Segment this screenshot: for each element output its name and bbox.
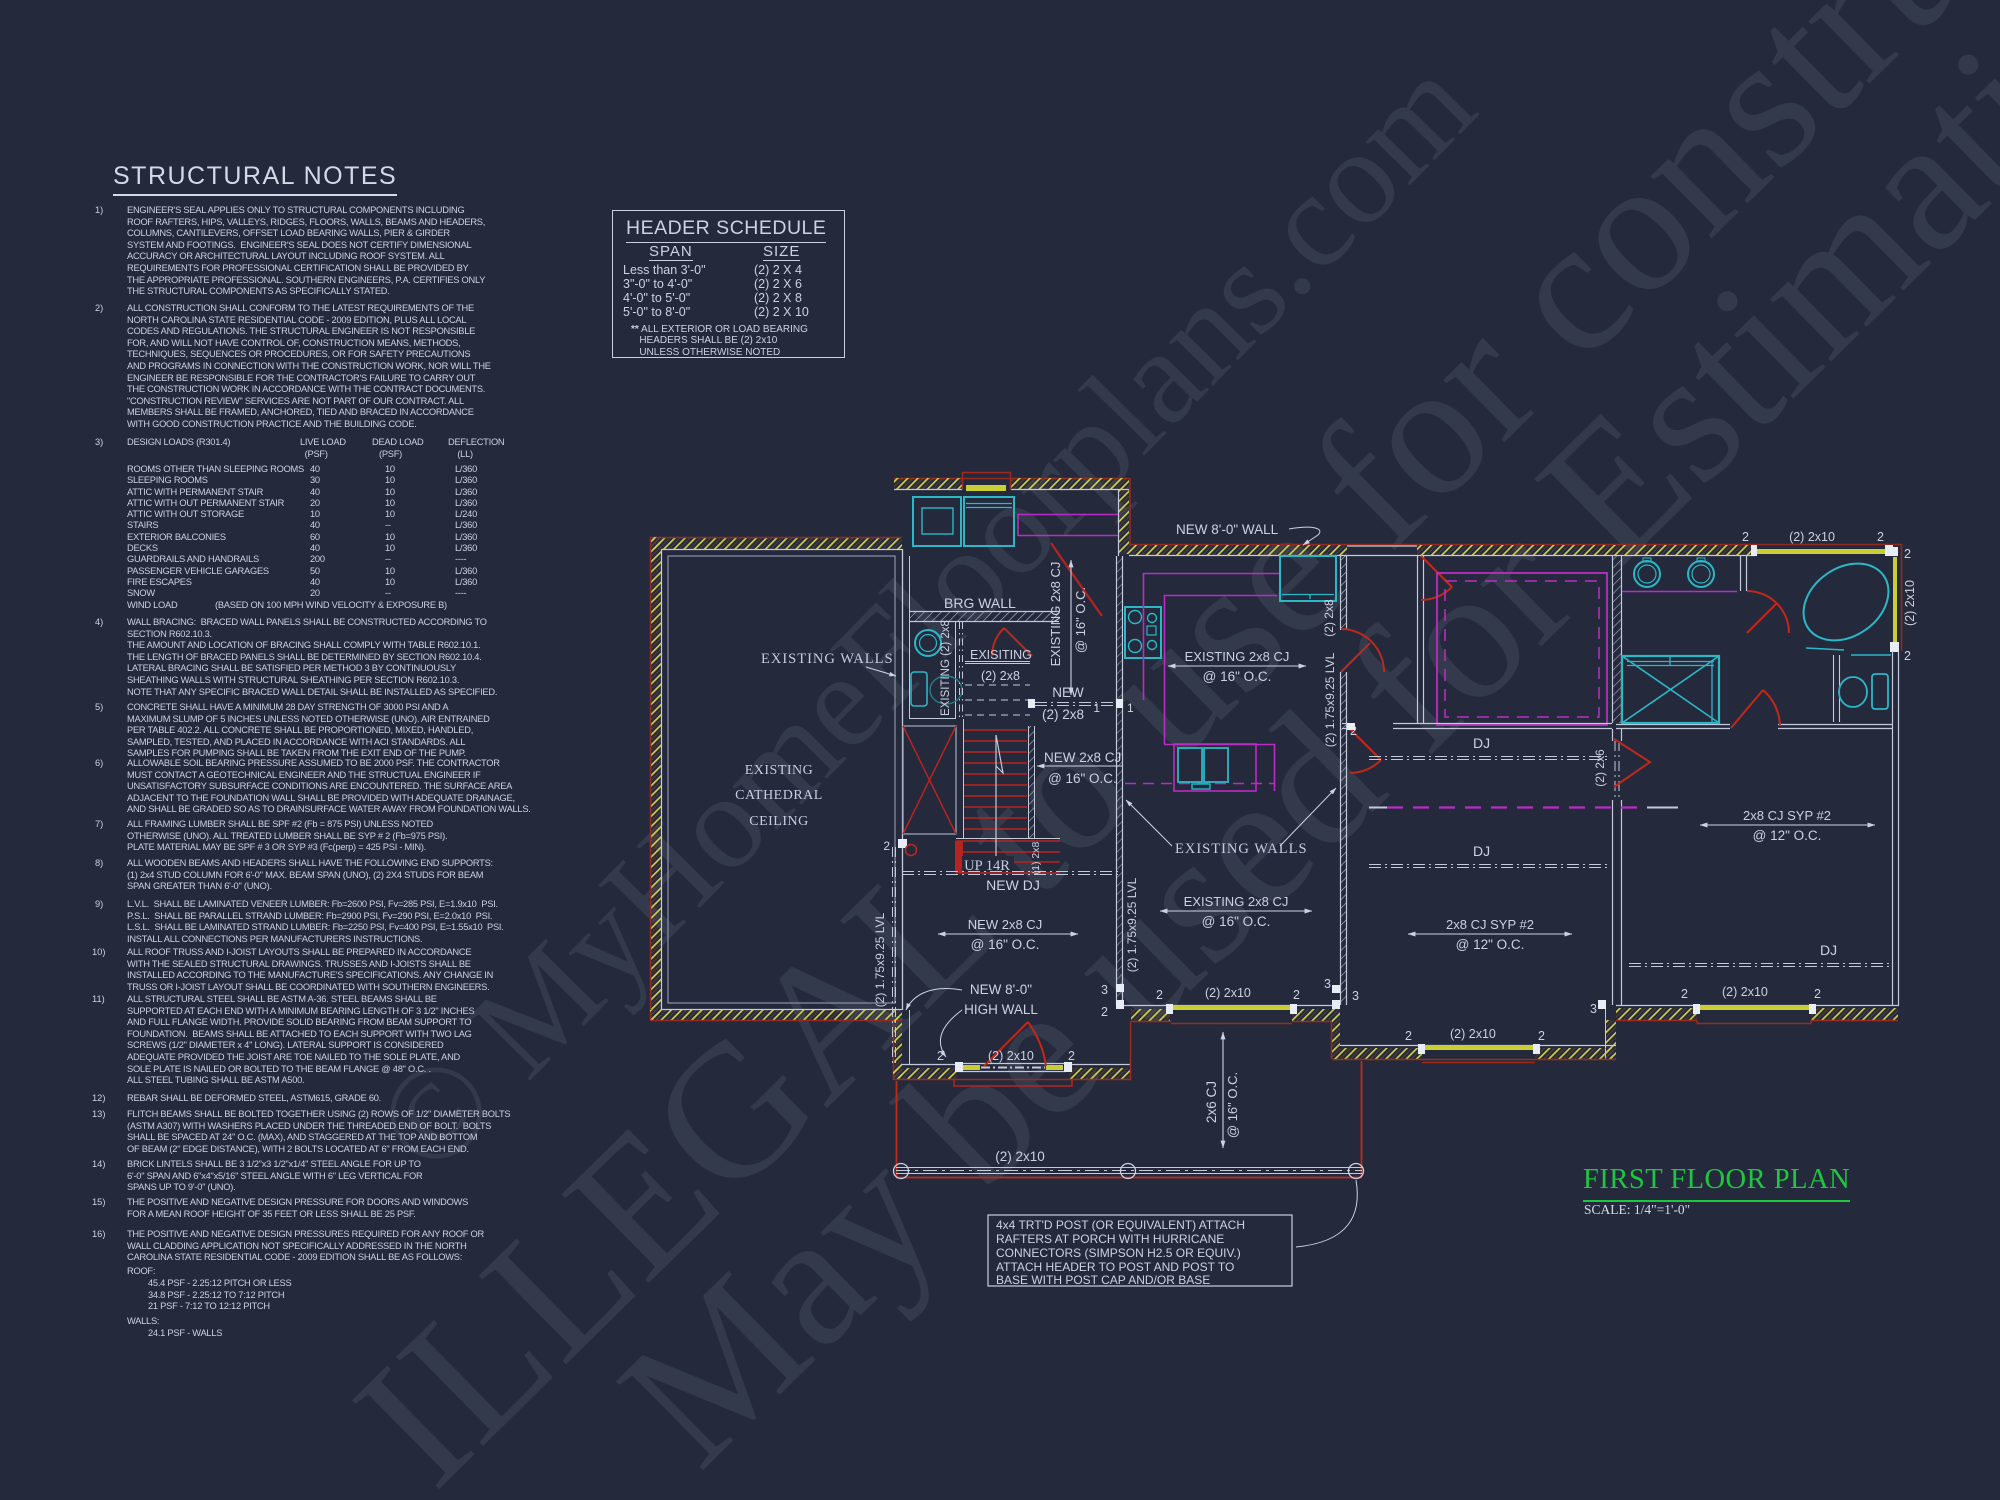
svg-text:NEW 2x8 CJ: NEW 2x8 CJ — [968, 917, 1042, 932]
svg-text:NEW 8'-0": NEW 8'-0" — [970, 982, 1032, 997]
svg-text:@ 16" O.C.: @ 16" O.C. — [1202, 914, 1271, 929]
svg-text:BRG WALL: BRG WALL — [944, 595, 1016, 611]
svg-text:(2) 2x8: (2) 2x8 — [1042, 707, 1084, 722]
svg-text:DJ: DJ — [1820, 942, 1837, 958]
svg-text:EXISTING WALLS: EXISTING WALLS — [761, 651, 894, 667]
svg-text:(2) 2x10: (2) 2x10 — [1722, 985, 1768, 999]
svg-text:HIGH WALL: HIGH WALL — [964, 1002, 1038, 1017]
svg-text:2: 2 — [1742, 530, 1749, 544]
svg-text:(2) 1.75x9.25 LVL: (2) 1.75x9.25 LVL — [1323, 652, 1337, 747]
svg-text:(2) 2x10: (2) 2x10 — [1903, 580, 1917, 626]
svg-text:CATHEDRAL: CATHEDRAL — [735, 788, 823, 803]
svg-text:(2) 2x10: (2) 2x10 — [988, 1049, 1034, 1063]
svg-text:@ 12" O.C.: @ 12" O.C. — [1753, 828, 1822, 843]
svg-text:@ 16" O.C.: @ 16" O.C. — [1073, 587, 1088, 653]
svg-text:2: 2 — [1877, 530, 1884, 544]
svg-text:(2) 2x6: (2) 2x6 — [1593, 749, 1607, 787]
svg-text:EXISTING 2x8 CJ: EXISTING 2x8 CJ — [1048, 562, 1063, 667]
svg-text:DJ: DJ — [1473, 735, 1490, 751]
svg-text:(2) 2x10: (2) 2x10 — [1450, 1027, 1496, 1041]
svg-text:2x8 CJ SYP #2: 2x8 CJ SYP #2 — [1743, 808, 1831, 823]
svg-text:4x4 TRT'D POST (OR EQUIVALENT): 4x4 TRT'D POST (OR EQUIVALENT) ATTACH — [996, 1218, 1245, 1232]
svg-text:1: 1 — [1127, 701, 1134, 715]
svg-text:@ 16" O.C.: @ 16" O.C. — [971, 937, 1040, 952]
svg-text:2: 2 — [1904, 547, 1911, 561]
svg-text:ATTACH HEADER TO POST AND POST: ATTACH HEADER TO POST AND POST TO — [996, 1260, 1234, 1274]
svg-text:2: 2 — [1101, 1005, 1108, 1019]
svg-text:@ 16" O.C.: @ 16" O.C. — [1048, 771, 1117, 786]
svg-text:@ 12" O.C.: @ 12" O.C. — [1456, 937, 1525, 952]
svg-text:EXISTING: EXISTING — [745, 763, 814, 778]
svg-text:2: 2 — [1814, 987, 1821, 1001]
svg-text:@ 16" O.C.: @ 16" O.C. — [1203, 669, 1272, 684]
svg-text:EXISITING (2) 2x8: EXISITING (2) 2x8 — [940, 620, 952, 716]
svg-text:NEW: NEW — [1052, 685, 1084, 700]
svg-text:EXISTING WALLS: EXISTING WALLS — [1175, 841, 1308, 857]
svg-text:EXISTING 2x8 CJ: EXISTING 2x8 CJ — [1185, 649, 1290, 664]
svg-text:3: 3 — [1352, 989, 1359, 1003]
svg-text:EXISTING 2x8 CJ: EXISTING 2x8 CJ — [1184, 894, 1289, 909]
svg-text:2x8 CJ SYP #2: 2x8 CJ SYP #2 — [1446, 917, 1534, 932]
svg-text:(2) 2x10: (2) 2x10 — [1205, 986, 1251, 1000]
svg-text:NEW 2x8 CJ: NEW 2x8 CJ — [1044, 750, 1121, 765]
svg-text:2: 2 — [1405, 1029, 1412, 1043]
svg-text:1: 1 — [1093, 701, 1100, 715]
svg-text:(2) 2x10: (2) 2x10 — [995, 1149, 1045, 1164]
svg-text:3: 3 — [1101, 983, 1108, 997]
svg-text:(1) 2x8: (1) 2x8 — [1030, 842, 1042, 875]
svg-text:NEW 8'-0" WALL: NEW 8'-0" WALL — [1176, 522, 1279, 537]
svg-text:2: 2 — [883, 839, 890, 853]
svg-text:3: 3 — [1324, 977, 1331, 991]
svg-text:2: 2 — [1681, 987, 1688, 1001]
svg-text:3: 3 — [1590, 1002, 1597, 1016]
svg-text:@ 16" O.C.: @ 16" O.C. — [1225, 1072, 1240, 1138]
svg-text:EXISITING: EXISITING — [970, 648, 1032, 662]
svg-text:BASE WITH POST CAP AND/OR BASE: BASE WITH POST CAP AND/OR BASE — [996, 1273, 1210, 1287]
svg-text:CEILING: CEILING — [749, 814, 809, 829]
svg-text:2x6 CJ: 2x6 CJ — [1204, 1081, 1219, 1123]
svg-text:(2) 2x8: (2) 2x8 — [1322, 599, 1336, 637]
svg-text:NEW DJ: NEW DJ — [986, 877, 1040, 893]
svg-text:(2) 2x8: (2) 2x8 — [981, 669, 1020, 683]
svg-text:DJ: DJ — [1473, 843, 1490, 859]
svg-text:2: 2 — [1156, 988, 1163, 1002]
svg-text:2: 2 — [1068, 1049, 1075, 1063]
svg-text:2: 2 — [1293, 988, 1300, 1002]
svg-text:RAFTERS AT PORCH WITH HURRICAN: RAFTERS AT PORCH WITH HURRICANE — [996, 1232, 1224, 1246]
svg-text:CONNECTORS (SIMPSON H2.5 OR EQ: CONNECTORS (SIMPSON H2.5 OR EQUIV.) — [996, 1246, 1241, 1260]
svg-text:(2) 1.75x9.25 LVL: (2) 1.75x9.25 LVL — [1125, 877, 1139, 972]
svg-text:2: 2 — [937, 1049, 944, 1063]
svg-text:2: 2 — [1538, 1029, 1545, 1043]
svg-text:(2) 1.75x9.25 LVL: (2) 1.75x9.25 LVL — [873, 912, 887, 1007]
svg-text:(2) 2x10: (2) 2x10 — [1789, 530, 1835, 544]
svg-text:2: 2 — [1904, 649, 1911, 663]
